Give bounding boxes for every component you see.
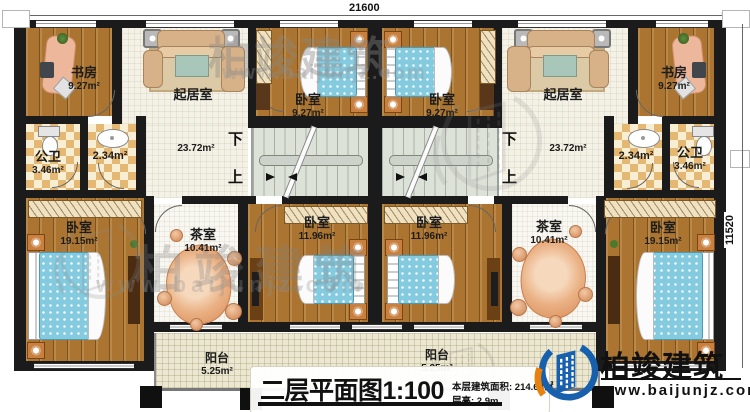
chaise-living-right bbox=[507, 46, 531, 92]
room-name: 书房 bbox=[642, 66, 706, 81]
monitor-bedmid-left bbox=[252, 272, 259, 306]
nightstand bbox=[385, 303, 403, 320]
brand-divider bbox=[601, 378, 741, 380]
room-area: 9.27m² bbox=[276, 108, 340, 120]
window-living-right bbox=[518, 20, 606, 28]
sheet-fold bbox=[434, 47, 452, 97]
window-bedlarge-left bbox=[34, 363, 134, 369]
wardrobe-bedroomtop-left bbox=[256, 30, 272, 84]
room-area: 2.34m² bbox=[82, 150, 138, 163]
room-floor-living-right-b bbox=[502, 124, 604, 198]
stair-down-label-right: 下 bbox=[502, 128, 517, 149]
wall-bedlarge-right-left bbox=[144, 198, 154, 371]
floor-plan: 下 上 下 上 柏竣建筑 www.baijunjz.com 柏竣建筑 www.b… bbox=[0, 0, 750, 412]
nightstand bbox=[350, 96, 368, 113]
room-name: 起居室 bbox=[158, 88, 228, 103]
room-label-bath-left: 公卫 3.46m² bbox=[18, 150, 78, 176]
stair-rail-left bbox=[259, 155, 363, 166]
room-label-wash-right: 2.34m² bbox=[608, 150, 664, 163]
dimension-bracket bbox=[722, 10, 750, 28]
sink-drain-left bbox=[110, 136, 114, 140]
wall-study-bottom-right bbox=[662, 116, 726, 124]
chaise-living-left bbox=[221, 46, 245, 92]
room-area: 23.72m² bbox=[164, 143, 228, 155]
room-area: 19.15m² bbox=[630, 236, 696, 248]
sheet-fold bbox=[300, 47, 318, 97]
monitor-bedmid-right bbox=[491, 272, 498, 306]
nightstand bbox=[27, 234, 45, 251]
nightstand bbox=[349, 239, 367, 256]
plant-study-right bbox=[678, 33, 689, 44]
nightstand bbox=[349, 303, 367, 320]
room-area: 19.15m² bbox=[46, 236, 112, 248]
room-area: 3.46m² bbox=[660, 161, 720, 173]
room-area: 10.41m² bbox=[516, 235, 582, 247]
room-area: 11.96m² bbox=[396, 231, 462, 243]
plant-study-left bbox=[57, 33, 68, 44]
wall-row2-right-a bbox=[382, 196, 468, 204]
room-name: 卧室 bbox=[410, 93, 474, 108]
nightstand bbox=[384, 96, 402, 113]
pebble bbox=[549, 315, 562, 328]
pillar bbox=[140, 386, 162, 408]
sheet-fold bbox=[438, 255, 455, 304]
window-bedroomtop-left bbox=[280, 20, 338, 28]
stair-edge-left bbox=[251, 128, 253, 196]
room-name: 阳台 bbox=[186, 352, 248, 366]
window-bedmid-left bbox=[290, 324, 340, 330]
room-name: 卧室 bbox=[284, 216, 350, 231]
room-label-study-left: 书房 9.27m² bbox=[52, 66, 116, 92]
room-area: 10.41m² bbox=[170, 243, 236, 255]
wall-party bbox=[368, 20, 382, 332]
room-name: 茶室 bbox=[516, 220, 582, 235]
room-label-tea-left: 茶室 10.41m² bbox=[170, 228, 236, 254]
room-label-living-right: 起居室 bbox=[528, 88, 598, 103]
wall-bath-bottom-right bbox=[610, 190, 726, 198]
sheet-fold bbox=[636, 252, 654, 340]
room-area: 11.96m² bbox=[284, 231, 350, 243]
room-label-bedroom-large-left: 卧室 19.15m² bbox=[46, 221, 112, 247]
room-label-study-right: 书房 9.27m² bbox=[642, 66, 706, 92]
dimension-line-top bbox=[24, 15, 726, 16]
floor-height-text: 层高: 2.9m bbox=[452, 393, 498, 407]
room-label-bedroom-top-right: 卧室 9.27m² bbox=[410, 93, 474, 119]
window-study-left bbox=[36, 20, 96, 28]
plant-bedlarge-left bbox=[130, 240, 138, 248]
room-label-bath-right: 公卫 3.46m² bbox=[660, 146, 720, 172]
room-area: 9.27m² bbox=[642, 81, 706, 93]
room-name: 卧室 bbox=[276, 93, 340, 108]
stair-arrow-right bbox=[396, 173, 405, 181]
wall-row2-left-c bbox=[282, 196, 368, 204]
room-area: 3.46m² bbox=[18, 165, 78, 177]
room-area: 9.27m² bbox=[52, 81, 116, 93]
brand-website: www.baijunjz.com bbox=[601, 382, 750, 399]
room-label-bedroom-mid-right: 卧室 11.96m² bbox=[396, 216, 462, 242]
room-label-bedroom-mid-left: 卧室 11.96m² bbox=[284, 216, 350, 242]
wall-study-living-right bbox=[628, 20, 638, 124]
stair-arrow-right bbox=[418, 173, 427, 181]
nightstand bbox=[384, 31, 402, 48]
dimension-line-right bbox=[742, 24, 743, 368]
wardrobe-bedlarge-right bbox=[604, 200, 716, 218]
room-label-bedroom-top-left: 卧室 9.27m² bbox=[276, 93, 340, 119]
room-area: 23.72m² bbox=[536, 143, 600, 155]
pebble bbox=[157, 291, 172, 306]
wall-bath-bottom-left bbox=[14, 190, 140, 198]
room-name: 公卫 bbox=[660, 146, 720, 161]
sheet-fold bbox=[297, 255, 314, 304]
wall-study-bottom-left bbox=[14, 116, 88, 124]
wardrobe-bedlarge-left bbox=[28, 200, 142, 218]
room-name: 卧室 bbox=[630, 221, 696, 236]
room-area: 9.27m² bbox=[410, 108, 474, 120]
stair-arrow-left bbox=[266, 173, 275, 181]
dresser-bedroomtop-right bbox=[480, 84, 494, 110]
dimension-bracket bbox=[730, 150, 750, 168]
room-name: 卧室 bbox=[396, 216, 462, 231]
stair-up-label-right: 上 bbox=[502, 166, 517, 187]
dimension-right-value: 11520 bbox=[724, 212, 736, 248]
pebble bbox=[510, 299, 527, 316]
armchair-living-right bbox=[589, 50, 609, 88]
sheet-fold bbox=[88, 252, 106, 340]
room-label-bedroom-large-right: 卧室 19.15m² bbox=[630, 221, 696, 247]
stair-up-label-left: 上 bbox=[228, 166, 243, 187]
room-area: 2.34m² bbox=[608, 150, 664, 163]
window-center-bottom bbox=[352, 324, 402, 330]
window-study-right bbox=[656, 20, 708, 28]
stair-edge-right bbox=[497, 128, 499, 196]
room-label-balcony-left: 阳台 5.25m² bbox=[186, 352, 248, 377]
coffee-table-living-left bbox=[175, 55, 209, 77]
dresser-bedroomtop-left bbox=[256, 84, 270, 110]
brand-logo-icon bbox=[532, 340, 598, 406]
stair-down-label-left: 下 bbox=[228, 128, 243, 149]
dimension-top-value: 21600 bbox=[346, 2, 383, 14]
pebble bbox=[512, 247, 527, 262]
room-name: 公卫 bbox=[18, 150, 78, 165]
room-name: 书房 bbox=[52, 66, 116, 81]
nightstand bbox=[697, 234, 715, 251]
dimension-bracket bbox=[2, 10, 30, 28]
room-area-living-right: 23.72m² bbox=[536, 143, 600, 155]
stair-rail-right bbox=[389, 155, 493, 166]
wall-bedroomtop-left bbox=[248, 20, 256, 128]
stair-arrow-left bbox=[288, 173, 297, 181]
window-bedroomtop-right bbox=[414, 20, 472, 28]
room-area: 5.25m² bbox=[186, 366, 248, 378]
room-label-wash-left: 2.34m² bbox=[82, 150, 138, 163]
room-name: 阳台 bbox=[406, 349, 468, 363]
room-label-living-left: 起居室 bbox=[158, 88, 228, 103]
tv-cabinet-bedlarge-left bbox=[128, 256, 140, 324]
nightstand bbox=[27, 342, 45, 359]
window-living-left bbox=[146, 20, 234, 28]
armchair-living-left bbox=[143, 50, 163, 88]
room-label-tea-right: 茶室 10.41m² bbox=[516, 220, 582, 246]
room-name: 茶室 bbox=[170, 228, 236, 243]
pebble bbox=[190, 318, 203, 331]
wardrobe-bedroomtop-right bbox=[480, 30, 496, 84]
nightstand bbox=[350, 31, 368, 48]
tv-cabinet-bedlarge-right bbox=[608, 256, 620, 324]
coffee-table-living-right bbox=[543, 55, 577, 77]
window-bedmid-right bbox=[414, 324, 464, 330]
sink-drain-right bbox=[641, 136, 645, 140]
room-name: 卧室 bbox=[46, 221, 112, 236]
room-name: 起居室 bbox=[528, 88, 598, 103]
plant-bedlarge-right bbox=[610, 240, 618, 248]
pebble bbox=[578, 287, 593, 302]
pebble bbox=[225, 303, 242, 320]
room-area-living-left: 23.72m² bbox=[164, 143, 228, 155]
